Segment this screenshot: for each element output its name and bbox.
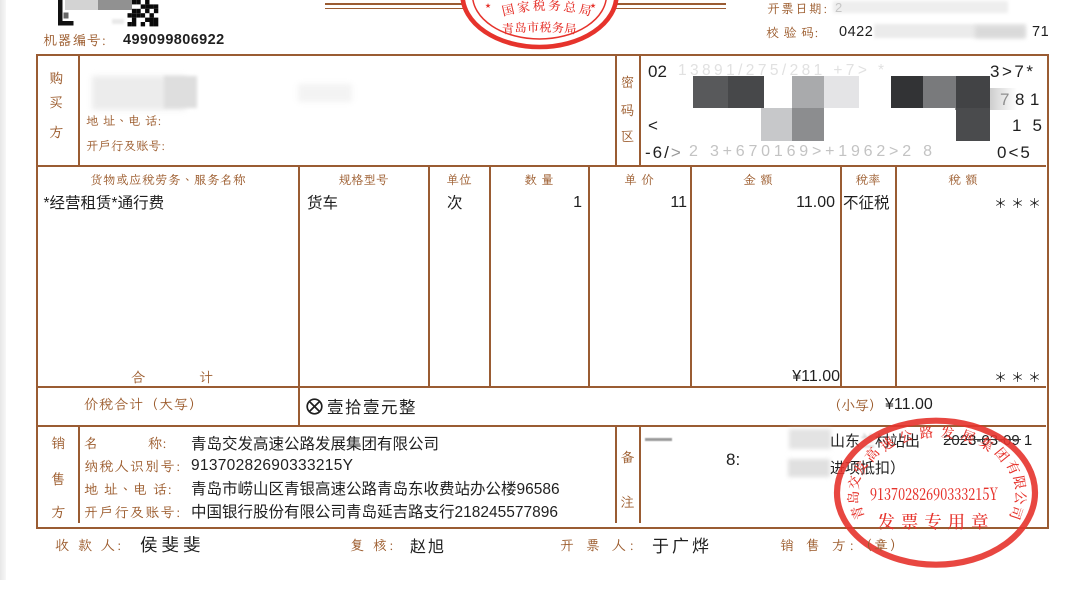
svg-text:青: 青 bbox=[501, 19, 515, 37]
svg-text:公: 公 bbox=[1011, 490, 1032, 506]
svg-text:展: 展 bbox=[959, 424, 979, 448]
svg-text:公: 公 bbox=[895, 423, 915, 447]
svg-text:91370282690333215Y: 91370282690333215Y bbox=[870, 480, 998, 505]
svg-text:发票专用章: 发票专用章 bbox=[878, 509, 989, 534]
svg-text:务: 务 bbox=[552, 19, 565, 37]
svg-text:税: 税 bbox=[532, 0, 546, 14]
svg-text:局: 局 bbox=[564, 19, 578, 37]
svg-text:岛: 岛 bbox=[842, 490, 863, 505]
svg-text:税: 税 bbox=[539, 18, 551, 35]
svg-text:家: 家 bbox=[516, 0, 531, 16]
svg-text:发: 发 bbox=[940, 421, 956, 443]
svg-text:市: 市 bbox=[527, 18, 539, 35]
svg-text:路: 路 bbox=[918, 421, 934, 443]
svg-text:司: 司 bbox=[1006, 504, 1029, 523]
svg-text:限: 限 bbox=[1010, 474, 1032, 491]
svg-text:务: 务 bbox=[548, 0, 562, 14]
svg-text:★: ★ bbox=[590, 2, 596, 10]
svg-text:青: 青 bbox=[845, 504, 868, 523]
svg-text:★: ★ bbox=[485, 2, 491, 10]
svg-text:岛: 岛 bbox=[514, 19, 527, 37]
